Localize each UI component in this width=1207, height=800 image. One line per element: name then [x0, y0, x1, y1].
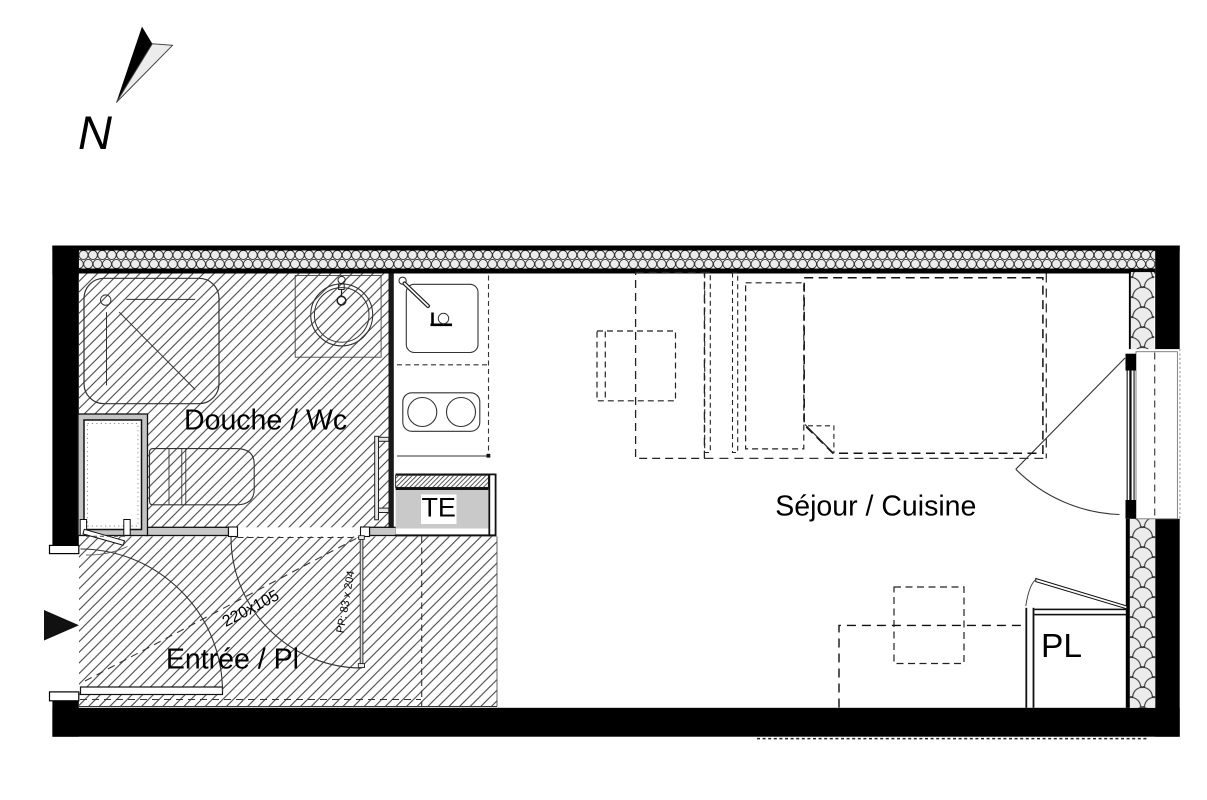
- svg-text:PL: PL: [1041, 628, 1082, 665]
- svg-text:N: N: [78, 106, 112, 159]
- svg-text:Douche / Wc: Douche / Wc: [184, 405, 347, 437]
- svg-text:Séjour / Cuisine: Séjour / Cuisine: [775, 491, 976, 523]
- svg-text:TE: TE: [421, 493, 456, 523]
- svg-text:Entrée / Pl: Entrée / Pl: [166, 644, 299, 676]
